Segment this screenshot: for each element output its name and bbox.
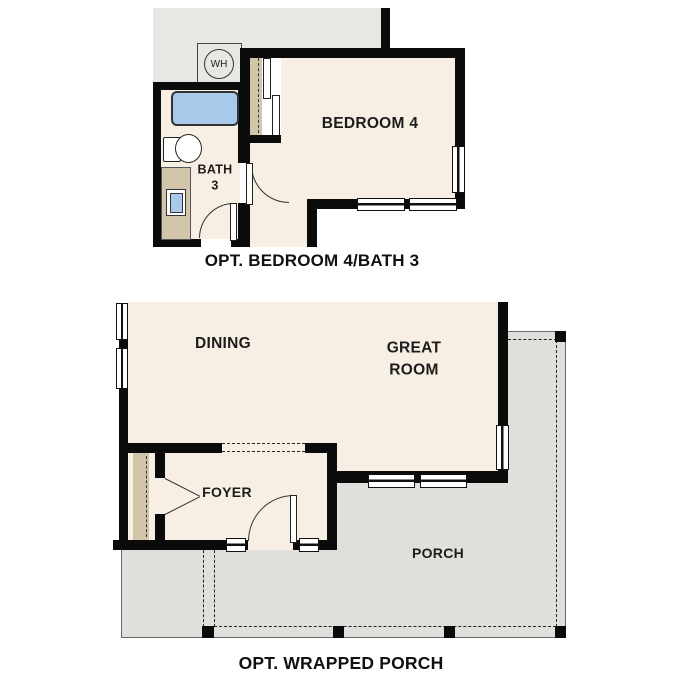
closet-rod-dashed-line	[258, 58, 259, 133]
wall	[317, 540, 337, 550]
floorplan-page: WH BE	[0, 0, 687, 687]
wall	[119, 387, 128, 550]
door-leaf	[290, 495, 297, 543]
plan-bedroom4-bath3: WH BE	[0, 0, 687, 280]
wall	[330, 471, 508, 483]
porch-edge	[565, 331, 566, 638]
porch-post	[444, 626, 455, 638]
wall	[305, 443, 337, 453]
porch-roof-dashed-line	[508, 339, 557, 340]
room-label-great-room: GREAT ROOM	[387, 338, 442, 383]
wall	[307, 199, 317, 247]
porch-roof-dashed-line	[203, 550, 204, 627]
room-label-foyer: FOYER	[202, 482, 252, 502]
room-label-dining: DINING	[195, 333, 251, 355]
wall	[153, 82, 161, 247]
bathtub	[171, 91, 239, 126]
window	[368, 474, 415, 488]
opening-dashed-line	[222, 451, 305, 452]
wall	[240, 48, 250, 143]
wall	[113, 540, 226, 550]
porch-post	[202, 626, 214, 638]
water-heater-label: WH	[211, 59, 228, 70]
window	[409, 198, 457, 211]
porch-roof-dashed-line	[214, 550, 215, 627]
wall	[243, 48, 465, 58]
wall	[243, 135, 281, 143]
door-leaf	[246, 163, 253, 205]
room-label-bath-3: BATH 3	[198, 162, 233, 193]
closet-rod-dashed-line	[146, 456, 147, 537]
wall	[238, 203, 250, 247]
porch-edge	[121, 550, 122, 638]
window	[357, 198, 405, 211]
plan-wrapped-porch: DINING GREAT ROOM FOYER PORCH OPT. WRAPP…	[0, 280, 687, 687]
window	[452, 146, 465, 193]
porch-post	[555, 626, 566, 638]
plan-caption-wrapped-porch: OPT. WRAPPED PORCH	[239, 653, 444, 674]
room-label-porch: PORCH	[412, 543, 464, 563]
wall	[119, 443, 222, 453]
wall	[155, 514, 165, 550]
closet-slider-panel	[263, 58, 271, 99]
closet-slider-panel	[272, 95, 280, 136]
hall-floor	[248, 199, 310, 247]
toilet-bowl	[175, 134, 202, 163]
door-leaf	[230, 203, 237, 241]
opening-dashed-line	[222, 443, 305, 444]
window-sidelite	[226, 538, 246, 552]
porch-post	[555, 331, 566, 342]
water-heater-icon: WH	[204, 49, 234, 79]
closet-bedroom	[250, 56, 262, 135]
sink-basin	[170, 193, 183, 213]
window	[420, 474, 467, 488]
wall	[153, 82, 250, 90]
porch-roof-dashed-line	[214, 626, 556, 627]
porch-post	[333, 626, 344, 638]
porch-roof-dashed-line	[556, 340, 557, 627]
window	[116, 348, 128, 389]
wall	[155, 453, 165, 478]
plan-caption-bedroom4-bath3: OPT. BEDROOM 4/BATH 3	[205, 251, 420, 271]
wall	[381, 8, 390, 52]
window	[496, 425, 509, 470]
window	[116, 303, 128, 340]
wall	[327, 443, 337, 550]
room-label-bedroom-4: BEDROOM 4	[322, 113, 419, 135]
area-porch-front	[121, 550, 566, 638]
window-sidelite	[299, 538, 319, 552]
wall	[153, 239, 201, 247]
